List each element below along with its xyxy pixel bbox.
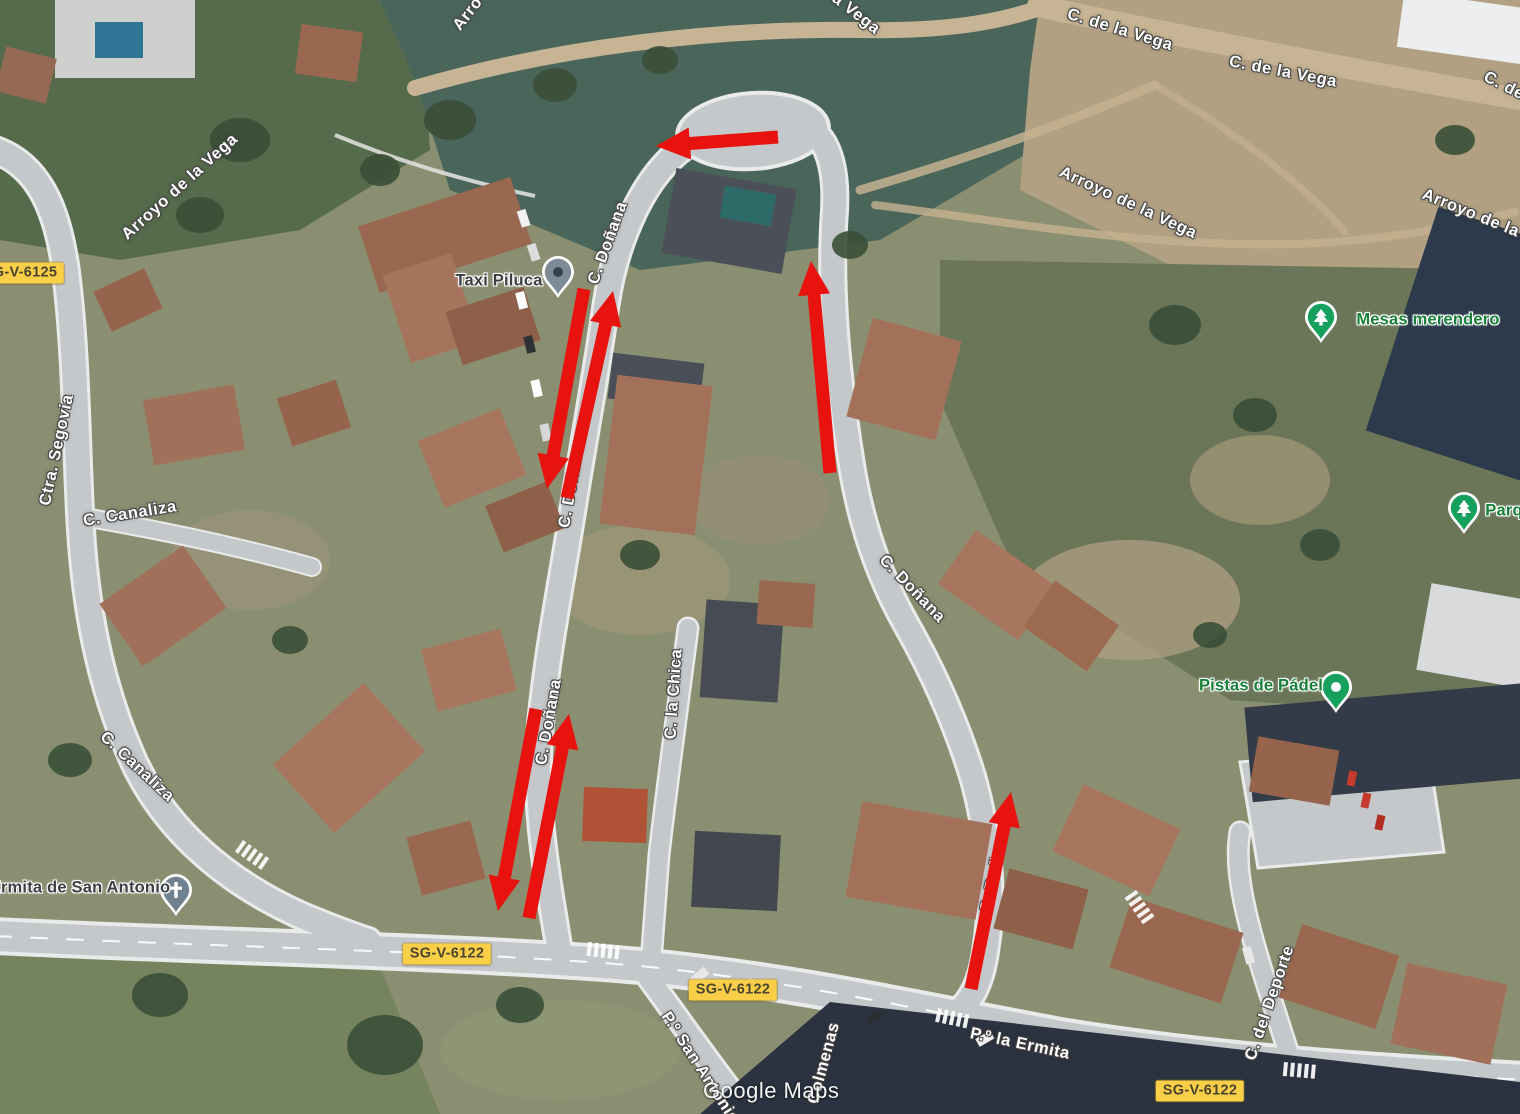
- street-label: Arro: [449, 0, 487, 35]
- pistas-de-padel-label[interactable]: Pistas de Pádel: [1199, 677, 1323, 696]
- street-label: Arroyo de la Vega: [1419, 185, 1520, 259]
- street-label: C. Doñana: [532, 678, 566, 767]
- street-label: C. del Deporte: [1241, 943, 1298, 1063]
- street-label: Arroyo de la Vega: [118, 130, 242, 244]
- taxi-piluca-pin-icon: [539, 253, 577, 305]
- street-label: C. Canaliza: [96, 728, 178, 806]
- street-label: C. Doñana: [555, 441, 589, 530]
- street-label: C. de la Vega: [1227, 52, 1338, 92]
- google-maps-watermark: Google Maps: [703, 1078, 839, 1104]
- street-label: Ctra. Segovia: [36, 393, 78, 508]
- ermita-de-san-antonio-label[interactable]: Ermita de San Antonio: [0, 879, 170, 898]
- street-label: a Vega: [828, 0, 884, 39]
- street-label: C. de: [1480, 68, 1520, 105]
- mesas-merendero-label[interactable]: Mesas merendero: [1356, 311, 1499, 330]
- parque-label[interactable]: Parq: [1485, 502, 1520, 521]
- road-badge: SG-V-6122: [1156, 1081, 1244, 1102]
- mesas-merendero-pin[interactable]: [1302, 298, 1340, 350]
- parque-pin[interactable]: [1445, 489, 1483, 541]
- mesas-merendero-pin-icon: [1302, 298, 1340, 350]
- road-badge: SG-V-6125: [0, 263, 64, 284]
- street-label: C. la Chica: [661, 648, 686, 740]
- parque-pin-icon: [1445, 489, 1483, 541]
- street-label: C. Doñana: [584, 199, 632, 287]
- taxi-piluca-label[interactable]: Taxi Piluca: [455, 272, 542, 291]
- map-viewport[interactable]: Arroa VegaC. de la VegaC. de la VegaC. d…: [0, 0, 1520, 1114]
- taxi-piluca-pin[interactable]: [539, 253, 577, 305]
- street-label: C. Canaliza: [82, 497, 178, 531]
- street-label: C. de la Vega: [1065, 5, 1175, 55]
- road-badge: SG-V-6122: [403, 944, 491, 965]
- street-label: C. Doñana: [977, 825, 1014, 914]
- road-badge: SG-V-6122: [689, 980, 777, 1001]
- street-label: C. Doñana: [875, 551, 949, 627]
- street-label: P.º la Ermita: [968, 1024, 1071, 1064]
- map-annotations: Arroa VegaC. de la VegaC. de la VegaC. d…: [0, 0, 1520, 1114]
- street-label: Arroyo de la Vega: [1056, 163, 1200, 243]
